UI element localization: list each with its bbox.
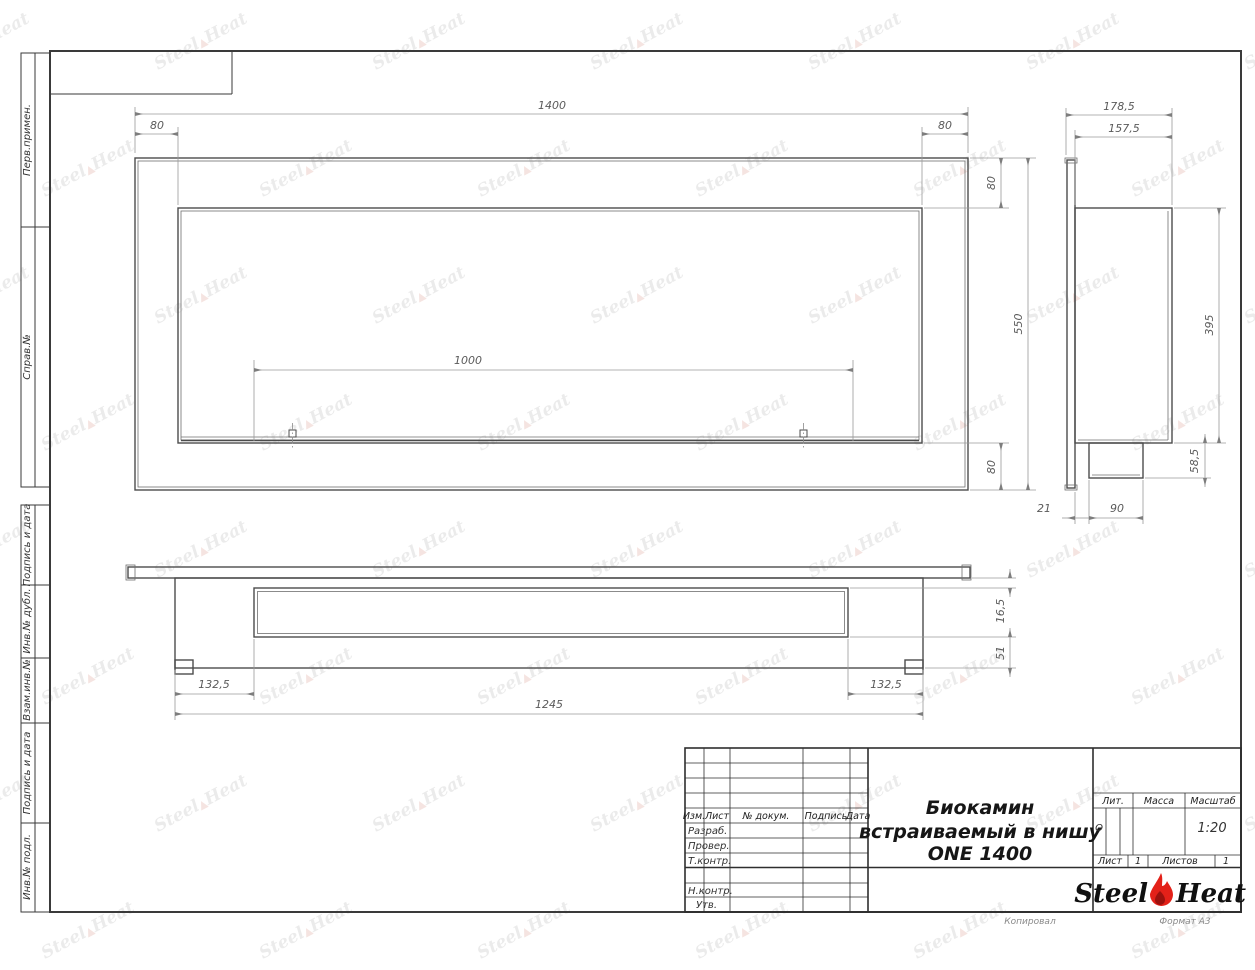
- watermark-text: Steel▲Heat: [256, 644, 356, 710]
- dim-label: 21: [1037, 502, 1051, 515]
- row-nkontr: Н.контр.: [688, 886, 733, 897]
- watermark-text: Steel▲Heat: [151, 517, 251, 583]
- col-doc: № докум.: [742, 811, 790, 822]
- drawing-sheet: Steel▲HeatSteel▲HeatSteel▲HeatSteel▲Heat…: [0, 0, 1255, 970]
- sidebar-label: Взам.инв.№: [22, 659, 33, 721]
- dim-label: 157,5: [1108, 122, 1140, 135]
- watermark-text: Steel▲Heat: [0, 263, 33, 329]
- scale-label: Масштаб: [1190, 796, 1235, 807]
- watermark-text: Steel▲Heat: [1023, 517, 1123, 583]
- dim-label: 1245: [535, 698, 563, 711]
- col-list: Лист: [704, 811, 730, 822]
- dim-label: 80: [938, 119, 952, 132]
- dim-label: 16,5: [994, 599, 1007, 624]
- watermark-text: Steel▲Heat: [38, 136, 138, 202]
- sidebar-label: Подпись и дата: [22, 504, 33, 587]
- title-line-2: встраиваемый в нишу: [859, 821, 1103, 843]
- top-left-stamp: [50, 51, 232, 94]
- watermark-text: Steel▲Heat: [369, 517, 469, 583]
- title-block: Изм. Лист № докум. Подпись Дата Разраб. …: [683, 748, 1246, 912]
- watermark-text: Steel▲Heat: [1241, 771, 1255, 837]
- footer-format: Формат A3: [1159, 917, 1211, 927]
- watermark-text: Steel▲Heat: [38, 644, 138, 710]
- dim-plan-slot-front-offset: 16,5: [850, 569, 1016, 623]
- footer-copy: Копировал: [1004, 917, 1056, 927]
- watermark-text: Steel▲Heat: [151, 771, 251, 837]
- sidebar-box-podpis-data-2: Подпись и дата: [21, 723, 50, 823]
- watermark-text: Steel▲Heat: [1128, 136, 1228, 202]
- logo-steel-text: Steel: [1074, 879, 1148, 909]
- watermark-text: Steel▲Heat: [474, 136, 574, 202]
- row-razrab: Разраб.: [688, 825, 727, 837]
- watermark-text: Steel▲Heat: [38, 898, 138, 964]
- dim-side-tray-depth: 90: [1089, 480, 1143, 524]
- dim-side-flange-offset: 21: [1037, 492, 1089, 524]
- col-podpis: Подпись: [805, 811, 848, 822]
- dim-label: 132,5: [198, 678, 230, 691]
- sheet-label: Лист: [1097, 856, 1123, 867]
- sidebar-label: Перв.примен.: [22, 104, 33, 176]
- watermark-text: Steel▲Heat: [256, 136, 356, 202]
- dim-label: 90: [1110, 502, 1124, 515]
- dim-front-left-inset: 80: [135, 119, 178, 205]
- dim-front-bottom-inset: 80: [924, 443, 1009, 490]
- watermark-text: Steel▲Heat: [910, 898, 1010, 964]
- side-body: [1075, 208, 1172, 443]
- watermark-text: Steel▲Heat: [805, 517, 905, 583]
- dim-label: 80: [985, 460, 998, 474]
- watermark-text: Steel▲Heat: [1128, 644, 1228, 710]
- sidebar-label: Справ.№: [22, 334, 33, 379]
- watermark-text: Steel▲Heat: [1023, 9, 1123, 75]
- watermark-text: Steel▲Heat: [587, 771, 687, 837]
- sheets-label: Листов: [1161, 856, 1198, 867]
- sidebar-label: Инв.№ дубл.: [21, 588, 33, 653]
- watermark-text: Steel▲Heat: [910, 390, 1010, 456]
- sidebar-box-inv-dubl: Инв.№ дубл.: [21, 585, 50, 658]
- watermark-text: Steel▲Heat: [692, 390, 792, 456]
- dim-label: 80: [985, 176, 998, 190]
- col-izm: Изм.: [683, 811, 705, 822]
- watermark-text: Steel▲Heat: [369, 771, 469, 837]
- watermark-text: Steel▲Heat: [1023, 263, 1123, 329]
- flame-icon: [1150, 873, 1173, 906]
- sidebar-box-podpis-data-1: Подпись и дата: [21, 504, 50, 587]
- dim-label: 1400: [538, 99, 566, 112]
- lit-label: Лит.: [1101, 796, 1124, 807]
- dim-label: 80: [150, 119, 164, 132]
- mass-label: Масса: [1144, 796, 1174, 807]
- watermark-text: Steel▲Heat: [38, 390, 138, 456]
- dim-side-body-depth: 157,5: [1075, 122, 1172, 205]
- plan-foot-right: [905, 660, 923, 674]
- watermark-text: Steel▲Heat: [369, 263, 469, 329]
- watermark-text: Steel▲Heat: [1241, 263, 1255, 329]
- watermark-text: Steel▲Heat: [151, 263, 251, 329]
- watermark-text: Steel▲Heat: [151, 9, 251, 75]
- watermark-text: Steel▲Heat: [587, 9, 687, 75]
- dim-label: 550: [1012, 314, 1025, 335]
- drawing-svg: Steel▲HeatSteel▲HeatSteel▲HeatSteel▲Heat…: [0, 0, 1255, 970]
- plan-flange-strip: [128, 567, 970, 578]
- watermark-text: Steel▲Heat: [256, 390, 356, 456]
- dim-label: 1000: [454, 354, 482, 367]
- watermark-text: Steel▲Heat: [474, 898, 574, 964]
- row-prover: Провер.: [688, 841, 730, 852]
- watermark-text: Steel▲Heat: [692, 136, 792, 202]
- watermark-text: Steel▲Heat: [474, 390, 574, 456]
- sidebar-label: Подпись и дата: [22, 732, 33, 815]
- watermark-text: Steel▲Heat: [1241, 517, 1255, 583]
- sheet-value: 1: [1135, 856, 1141, 867]
- dim-label: 395: [1203, 315, 1216, 336]
- logo-heat-text: Heat: [1175, 879, 1246, 909]
- sheet-frame: Перв.примен. Справ.№ Подпись и дата Инв.…: [21, 51, 1241, 912]
- sheet-footer: Копировал Формат A3: [1004, 917, 1211, 927]
- row-utv: Утв.: [696, 900, 717, 911]
- watermark-text: Steel▲Heat: [256, 898, 356, 964]
- title-line-3: ONE 1400: [928, 843, 1033, 865]
- dim-plan-slot-left-inset: 132,5: [175, 639, 254, 700]
- dim-label: 178,5: [1103, 100, 1135, 113]
- sidebar-box-perv-primen: Перв.примен.: [21, 53, 50, 227]
- watermark-text: Steel▲Heat: [587, 263, 687, 329]
- watermark-text: Steel▲Heat: [1241, 9, 1255, 75]
- scale-value: 1:20: [1197, 821, 1226, 836]
- watermark-text: Steel▲Heat: [692, 644, 792, 710]
- lit-value: О: [1095, 823, 1103, 834]
- row-tkontr: Т.контр.: [688, 856, 731, 867]
- sidebar-label: Инв.№ подл.: [22, 834, 33, 900]
- side-flange-plate: [1067, 160, 1075, 488]
- watermark-text: Steel▲Heat: [805, 263, 905, 329]
- watermark-text: Steel▲Heat: [0, 9, 33, 75]
- title-line-1: Биокамин: [926, 797, 1035, 819]
- watermark-text: Steel▲Heat: [910, 136, 1010, 202]
- watermark-text: Steel▲Heat: [805, 9, 905, 75]
- dim-label: 58,5: [1188, 449, 1201, 474]
- steelheat-logo: Steel Heat: [1074, 873, 1246, 909]
- sidebar-box-inv-podl: Инв.№ подл.: [21, 823, 50, 912]
- watermark-text: Steel▲Heat: [587, 517, 687, 583]
- plan-slot: [254, 588, 848, 637]
- watermark-text: Steel▲Heat: [369, 9, 469, 75]
- dim-label: 132,5: [870, 678, 902, 691]
- dim-label: 51: [994, 646, 1007, 660]
- sheets-value: 1: [1223, 856, 1229, 867]
- plan-foot-left: [175, 660, 193, 674]
